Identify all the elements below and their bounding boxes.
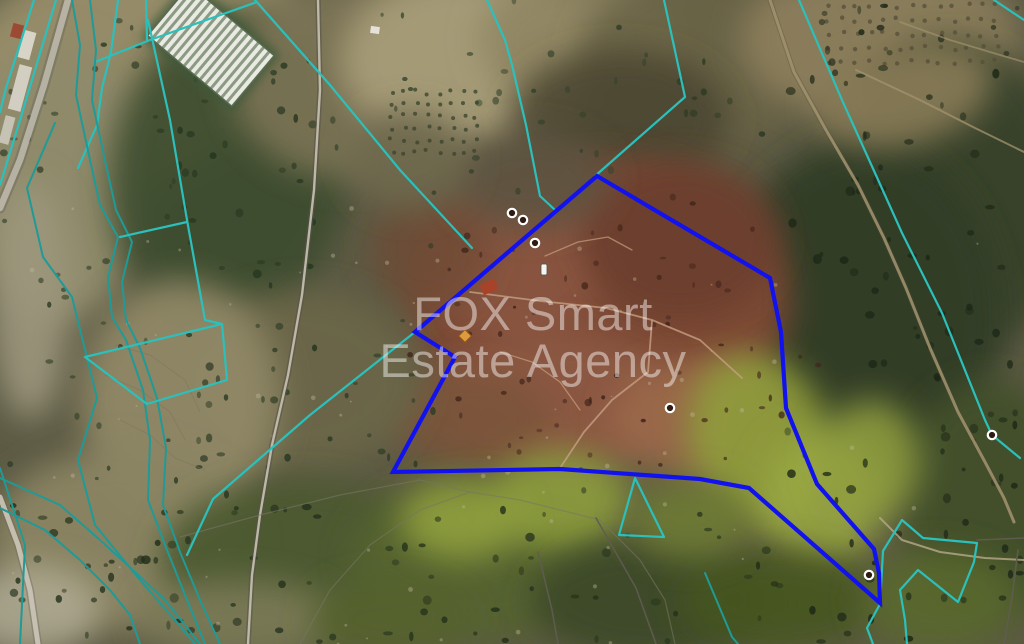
terrain-patch bbox=[630, 480, 750, 560]
map-marker-dot bbox=[988, 431, 996, 439]
terrain-patch bbox=[400, 480, 520, 560]
terrain-patch bbox=[350, 110, 470, 210]
map-marker-dot bbox=[865, 571, 873, 579]
cadastral-parcel-line bbox=[146, 0, 147, 40]
map-marker-dot bbox=[531, 239, 539, 247]
map-marker-dot bbox=[508, 209, 516, 217]
small-white-structure bbox=[541, 264, 547, 275]
map-marker-dot bbox=[519, 216, 527, 224]
map-viewport[interactable]: FOX Smart Estate Agency bbox=[0, 0, 1024, 644]
map-marker-dot bbox=[666, 404, 674, 412]
satellite-map[interactable]: FOX Smart Estate Agency bbox=[0, 0, 1024, 644]
white-shed bbox=[370, 26, 380, 34]
